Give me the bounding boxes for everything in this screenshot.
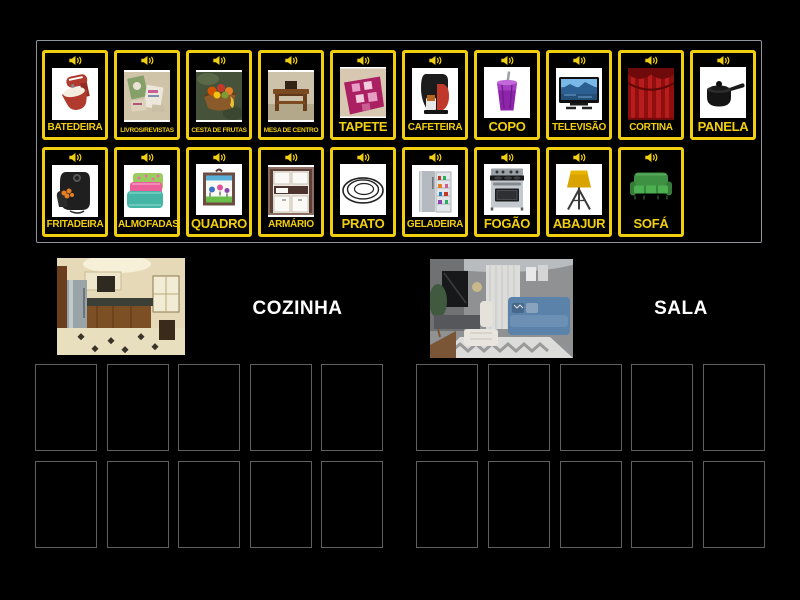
card-label: CAFETEIRA: [406, 123, 464, 134]
card-fogão[interactable]: FOGÃO: [474, 147, 540, 237]
card-cesta-de-frutas[interactable]: CESTA DE FRUTAS: [186, 50, 252, 140]
air-fryer-icon: [52, 165, 98, 217]
card-televisão[interactable]: TELEVISÃO: [546, 50, 612, 140]
card-prato[interactable]: PRATO: [330, 147, 396, 237]
card-label: CESTA DE FRUTAS: [190, 127, 248, 134]
speaker-icon[interactable]: [356, 55, 370, 66]
card-row-2: FRITADEIRAALMOFADASQUADROARMÁRIOPRATOGEL…: [42, 147, 761, 237]
drop-slot-cozinha-10[interactable]: [321, 461, 383, 548]
drop-slot-sala-8[interactable]: [560, 461, 622, 548]
card-almofadas[interactable]: ALMOFADAS: [114, 147, 180, 237]
curtain-icon: [628, 68, 674, 120]
card-livros-revistas[interactable]: LIVROS/REVISTAS: [114, 50, 180, 140]
card-cortina[interactable]: CORTINA: [618, 50, 684, 140]
card-tapete[interactable]: TAPETE: [330, 50, 396, 140]
drop-slot-sala-10[interactable]: [703, 461, 765, 548]
speaker-icon[interactable]: [356, 152, 370, 163]
speaker-icon[interactable]: [644, 55, 658, 66]
speaker-icon[interactable]: [212, 152, 226, 163]
drop-slot-sala-3[interactable]: [560, 364, 622, 451]
card-label: PRATO: [334, 217, 392, 231]
card-row-1: BATEDEIRALIVROS/REVISTASCESTA DE FRUTASM…: [42, 50, 761, 140]
card-quadro[interactable]: QUADRO: [186, 147, 252, 237]
card-label: SOFÁ: [622, 217, 680, 231]
card-batedeira[interactable]: BATEDEIRA: [42, 50, 108, 140]
picture-frame-icon: [196, 164, 242, 215]
cabinet-icon: [268, 165, 314, 217]
group-label-sala: SALA: [575, 298, 787, 320]
speaker-icon[interactable]: [500, 55, 514, 66]
card-label: COPO: [478, 120, 536, 134]
drop-slot-cozinha-6[interactable]: [35, 461, 97, 548]
speaker-icon[interactable]: [572, 152, 586, 163]
card-label: CORTINA: [622, 123, 680, 134]
card-label: FRITADEIRA: [46, 220, 104, 231]
card-label: MESA DE CENTRO: [262, 127, 320, 134]
card-mesa-de-centro[interactable]: MESA DE CENTRO: [258, 50, 324, 140]
speaker-icon[interactable]: [68, 152, 82, 163]
drop-slot-cozinha-5[interactable]: [321, 364, 383, 451]
drop-slot-sala-6[interactable]: [416, 461, 478, 548]
drop-slot-cozinha-9[interactable]: [250, 461, 312, 548]
drop-slot-sala-1[interactable]: [416, 364, 478, 451]
coffee-table-icon: [268, 70, 314, 122]
card-fritadeira[interactable]: FRITADEIRA: [42, 147, 108, 237]
drop-slot-sala-4[interactable]: [631, 364, 693, 451]
books-magazines-icon: [124, 70, 170, 122]
card-label: FOGÃO: [478, 217, 536, 231]
drop-slot-cozinha-4[interactable]: [250, 364, 312, 451]
pillows-icon: [124, 165, 170, 217]
card-copo[interactable]: COPO: [474, 50, 540, 140]
drop-slot-cozinha-2[interactable]: [107, 364, 169, 451]
speaker-icon[interactable]: [284, 152, 298, 163]
plate-icon: [340, 164, 386, 215]
cards-panel: BATEDEIRALIVROS/REVISTASCESTA DE FRUTASM…: [36, 40, 762, 243]
speaker-icon[interactable]: [428, 55, 442, 66]
card-label: BATEDEIRA: [46, 123, 104, 134]
card-label: TAPETE: [334, 120, 392, 134]
coffee-machine-icon: [412, 68, 458, 120]
fridge-icon: [412, 165, 458, 217]
card-label: TELEVISÃO: [550, 123, 608, 134]
rug-icon: [340, 67, 386, 118]
drop-slot-cozinha-3[interactable]: [178, 364, 240, 451]
card-label: LIVROS/REVISTAS: [118, 127, 176, 134]
card-cafeteira[interactable]: CAFETEIRA: [402, 50, 468, 140]
speaker-icon[interactable]: [572, 55, 586, 66]
drop-slot-sala-9[interactable]: [631, 461, 693, 548]
fruit-basket-icon: [196, 70, 242, 122]
card-label: ARMÁRIO: [262, 220, 320, 231]
card-geladeira[interactable]: GELADEIRA: [402, 147, 468, 237]
group-label-cozinha: COZINHA: [185, 298, 410, 320]
living-room-photo: [430, 259, 573, 358]
card-abajur[interactable]: ABAJUR: [546, 147, 612, 237]
lamp-icon: [556, 164, 602, 215]
speaker-icon[interactable]: [140, 152, 154, 163]
kitchen-photo: [57, 258, 185, 355]
card-panela[interactable]: PANELA: [690, 50, 756, 140]
speaker-icon[interactable]: [284, 55, 298, 66]
card-label: ABAJUR: [550, 217, 608, 231]
card-sofá[interactable]: SOFÁ: [618, 147, 684, 237]
drop-slot-cozinha-7[interactable]: [107, 461, 169, 548]
speaker-icon[interactable]: [500, 152, 514, 163]
drop-slot-sala-7[interactable]: [488, 461, 550, 548]
speaker-icon[interactable]: [140, 55, 154, 66]
card-label: PANELA: [694, 120, 752, 134]
mixer-icon: [52, 68, 98, 120]
drop-slot-sala-2[interactable]: [488, 364, 550, 451]
speaker-icon[interactable]: [212, 55, 226, 66]
card-label: ALMOFADAS: [118, 220, 176, 231]
cup-icon: [484, 67, 530, 118]
speaker-icon[interactable]: [428, 152, 442, 163]
television-icon: [556, 68, 602, 120]
drop-slot-sala-5[interactable]: [703, 364, 765, 451]
drop-slot-cozinha-1[interactable]: [35, 364, 97, 451]
activity-stage: BATEDEIRALIVROS/REVISTASCESTA DE FRUTASM…: [0, 0, 800, 600]
stove-icon: [484, 164, 530, 215]
speaker-icon[interactable]: [716, 55, 730, 66]
speaker-icon[interactable]: [68, 55, 82, 66]
speaker-icon[interactable]: [644, 152, 658, 163]
drop-slot-cozinha-8[interactable]: [178, 461, 240, 548]
saucepan-icon: [700, 67, 746, 118]
sofa-icon: [628, 164, 674, 215]
card-label: QUADRO: [190, 217, 248, 231]
card-armário[interactable]: ARMÁRIO: [258, 147, 324, 237]
card-label: GELADEIRA: [406, 220, 464, 231]
